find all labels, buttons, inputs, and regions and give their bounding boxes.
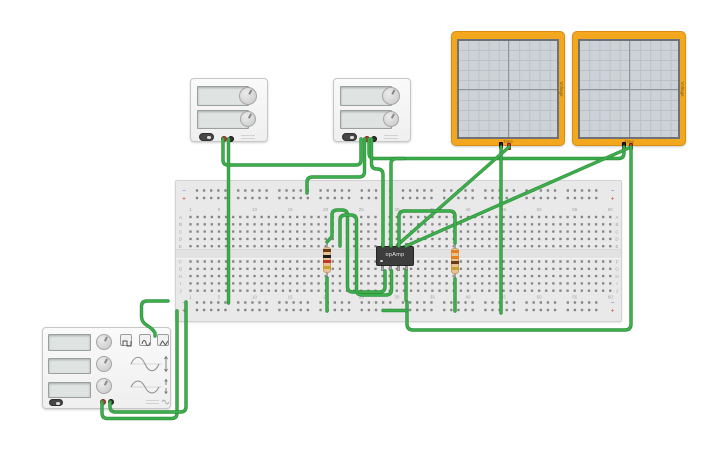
scope-center-hline (580, 89, 678, 90)
circuit-canvas: 1155101015152020252530303535404045455050… (0, 0, 725, 453)
resistor-2[interactable] (451, 242, 460, 280)
power-supply-1-negative-terminal[interactable] (228, 136, 234, 142)
resistor-band (451, 256, 458, 259)
fg-positive-terminal[interactable] (100, 399, 106, 405)
chip-pin1-dot (380, 260, 383, 263)
wire-ps1-pos-to-ps2[interactable] (223, 139, 361, 165)
chip-pin (397, 266, 400, 271)
resistor-band (451, 261, 458, 264)
power-supply-2-power-button[interactable] (342, 133, 357, 141)
chip-pin (389, 266, 392, 271)
power-supply-2-current-knob[interactable] (383, 111, 399, 127)
fg-brand-mark (146, 398, 159, 406)
oscilloscope-2-voltage-label: Voltage (680, 81, 685, 96)
power-supply-1[interactable] (190, 78, 268, 142)
amplitude-diagram-icon (129, 354, 171, 374)
scope-center-hline (459, 89, 557, 90)
power-supply-1-positive-terminal[interactable] (221, 136, 227, 142)
oscilloscope-1-screen (457, 39, 559, 139)
fg-amplitude-display (48, 358, 91, 374)
fg-frequency-knob[interactable] (96, 334, 112, 350)
resistor-band (323, 266, 330, 269)
resistor-band (323, 255, 330, 258)
oscilloscope-2-positive-terminal[interactable] (629, 143, 633, 150)
power-supply-2[interactable] (333, 78, 411, 142)
fg-sine-wave-button[interactable] (139, 334, 151, 346)
fg-power-button[interactable] (49, 399, 63, 406)
oscilloscope-2[interactable]: Time Voltage (572, 31, 686, 146)
fg-frequency-display (48, 334, 91, 351)
power-supply-1-power-button[interactable] (199, 133, 214, 141)
fg-triangle-wave-button[interactable] (157, 334, 169, 346)
power-supply-1-current-knob[interactable] (240, 111, 256, 127)
opamp-chip[interactable]: opAmp (376, 243, 414, 271)
oscilloscope-2-negative-terminal[interactable] (622, 142, 626, 149)
power-supply-2-positive-terminal[interactable] (364, 136, 370, 142)
power-supply-2-negative-terminal[interactable] (371, 136, 377, 142)
fg-amplitude-knob[interactable] (96, 356, 112, 372)
chip-pin (405, 266, 408, 271)
fg-output-wave-icon (161, 398, 170, 405)
function-generator[interactable] (42, 327, 171, 409)
oscilloscope-1-negative-terminal[interactable] (499, 142, 503, 149)
chip-pin (381, 266, 384, 271)
oscilloscope-2-screen (578, 39, 680, 139)
power-supply-1-voltage-knob[interactable] (239, 87, 257, 105)
resistor-band (451, 250, 458, 253)
fg-square-wave-button[interactable] (120, 334, 132, 346)
power-supply-2-voltage-knob[interactable] (382, 87, 400, 105)
oscilloscope-1[interactable]: Time Voltage (451, 31, 565, 146)
square-wave-icon (122, 338, 132, 348)
fg-offset-knob[interactable] (96, 378, 112, 394)
resistor-band (323, 260, 330, 263)
fg-negative-terminal[interactable] (108, 399, 114, 405)
oscilloscope-1-positive-terminal[interactable] (507, 143, 511, 150)
power-supply-1-brand-mark (241, 133, 255, 141)
triangle-wave-icon (159, 338, 169, 348)
power-supply-2-brand-mark (384, 133, 398, 141)
chip-label: opAmp (377, 252, 413, 258)
resistor-band (451, 267, 458, 270)
wire-ps1-pos-to-ps2[interactable] (223, 139, 361, 165)
fg-offset-display (48, 382, 91, 398)
chip-body: opAmp (376, 246, 414, 266)
oscilloscope-1-voltage-label: Voltage (559, 81, 564, 96)
resistor-1[interactable] (323, 241, 332, 279)
offset-diagram-icon (129, 376, 171, 396)
resistor-band (323, 249, 330, 252)
sine-wave-icon (141, 338, 151, 348)
